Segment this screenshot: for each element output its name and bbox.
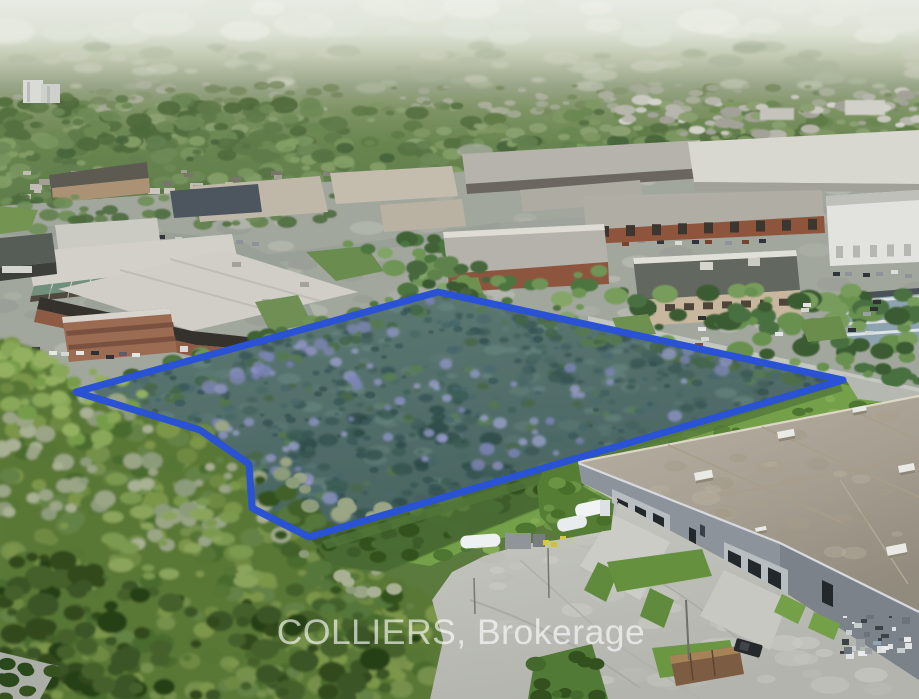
svg-text:COLLIERS, Brokerage: COLLIERS, Brokerage bbox=[277, 612, 646, 652]
